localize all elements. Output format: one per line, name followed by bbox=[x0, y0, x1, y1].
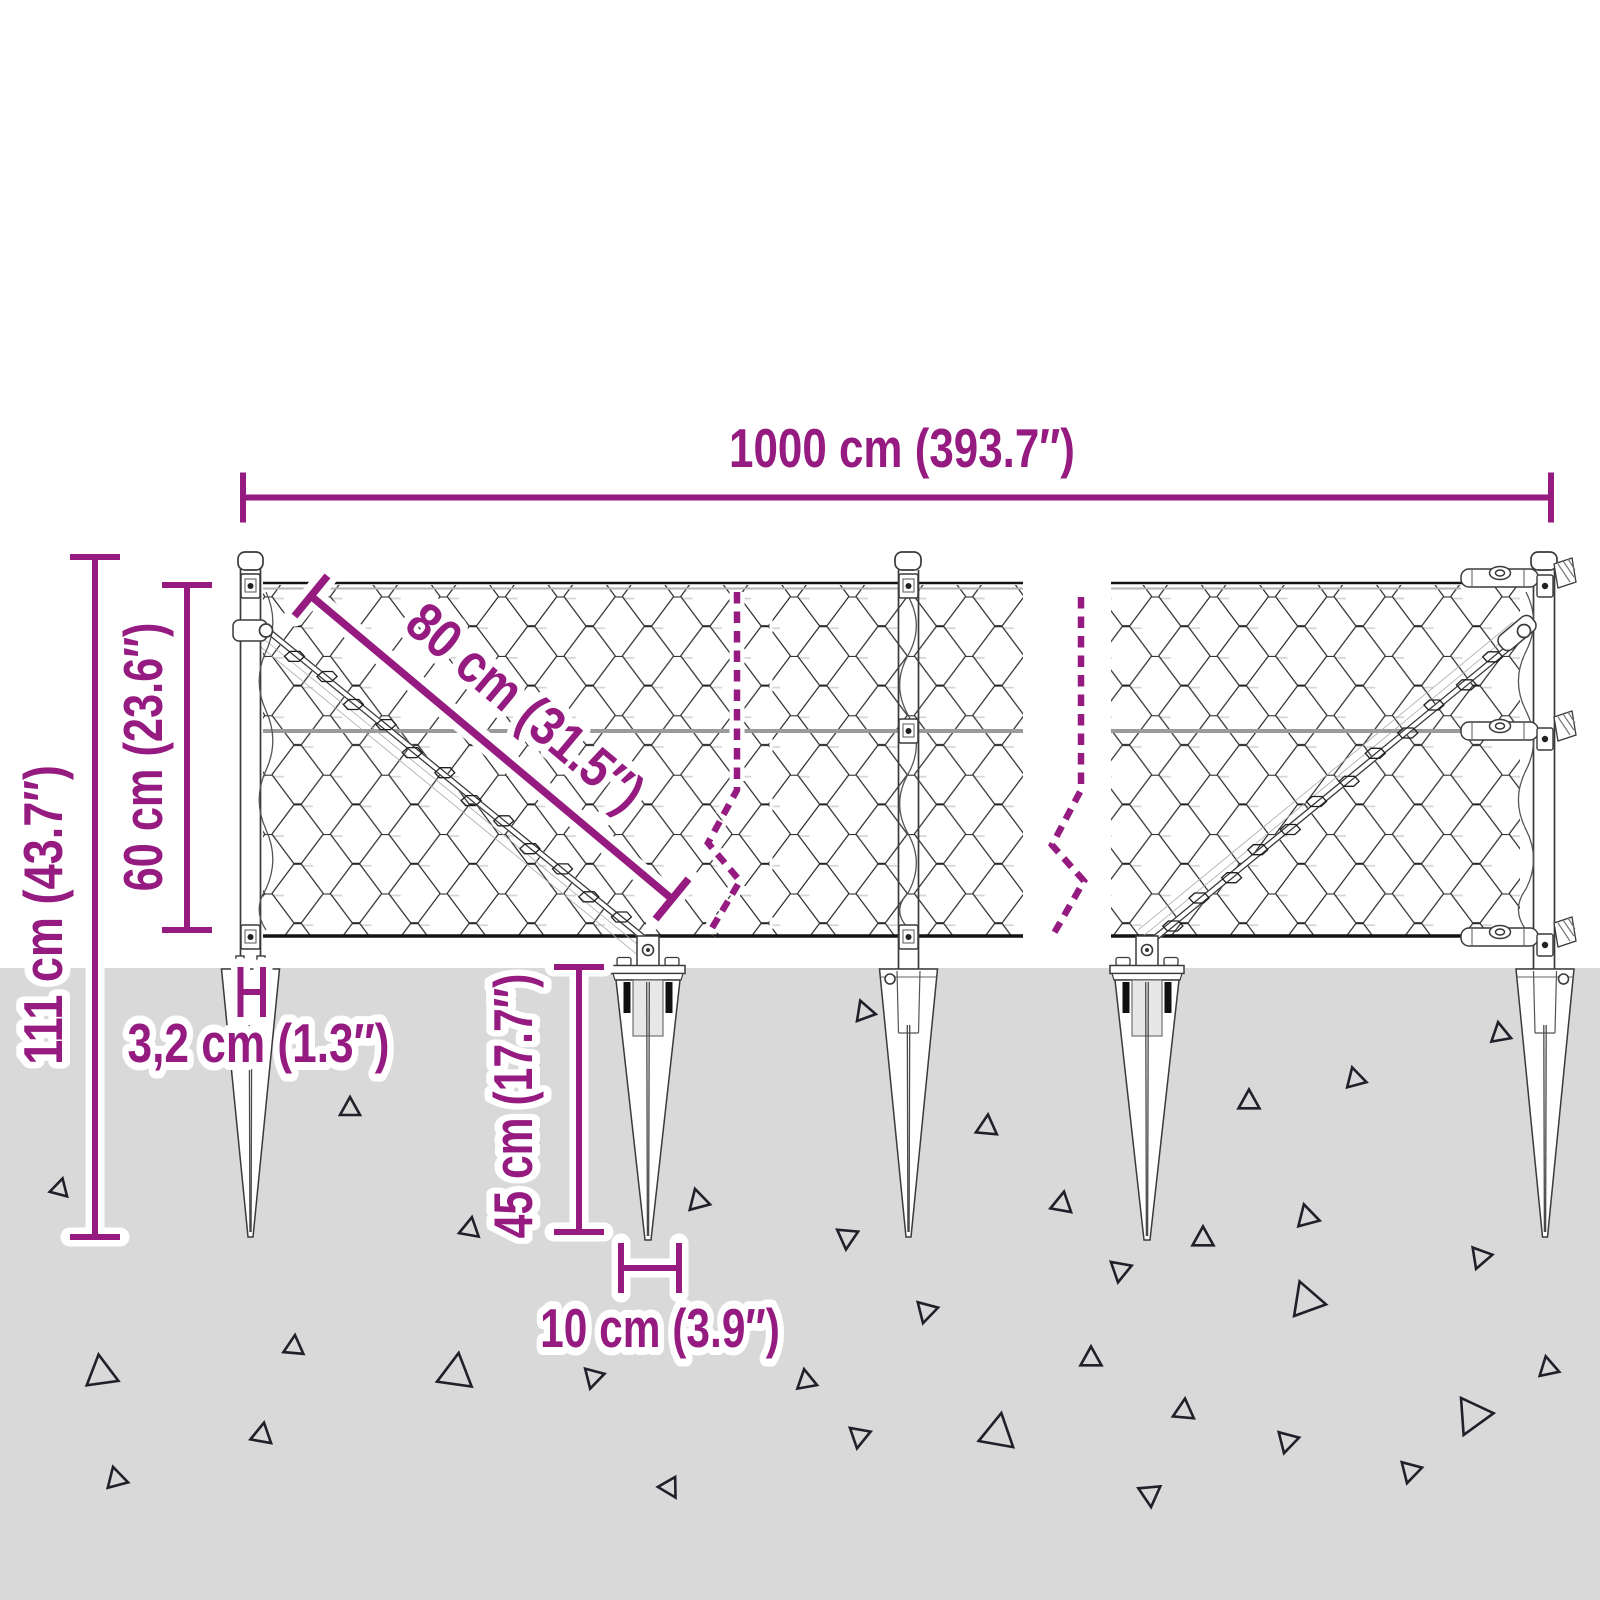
svg-text:60 cm (23.6″): 60 cm (23.6″) bbox=[113, 623, 174, 892]
svg-text:45 cm (17.7″): 45 cm (17.7″) bbox=[483, 974, 544, 1239]
svg-text:10 cm (3.9″): 10 cm (3.9″) bbox=[540, 1299, 780, 1359]
svg-text:3,2 cm (1.3″): 3,2 cm (1.3″) bbox=[127, 1012, 389, 1074]
svg-text:111 cm (43.7″): 111 cm (43.7″) bbox=[12, 765, 74, 1065]
svg-text:1000 cm (393.7″): 1000 cm (393.7″) bbox=[729, 417, 1075, 479]
